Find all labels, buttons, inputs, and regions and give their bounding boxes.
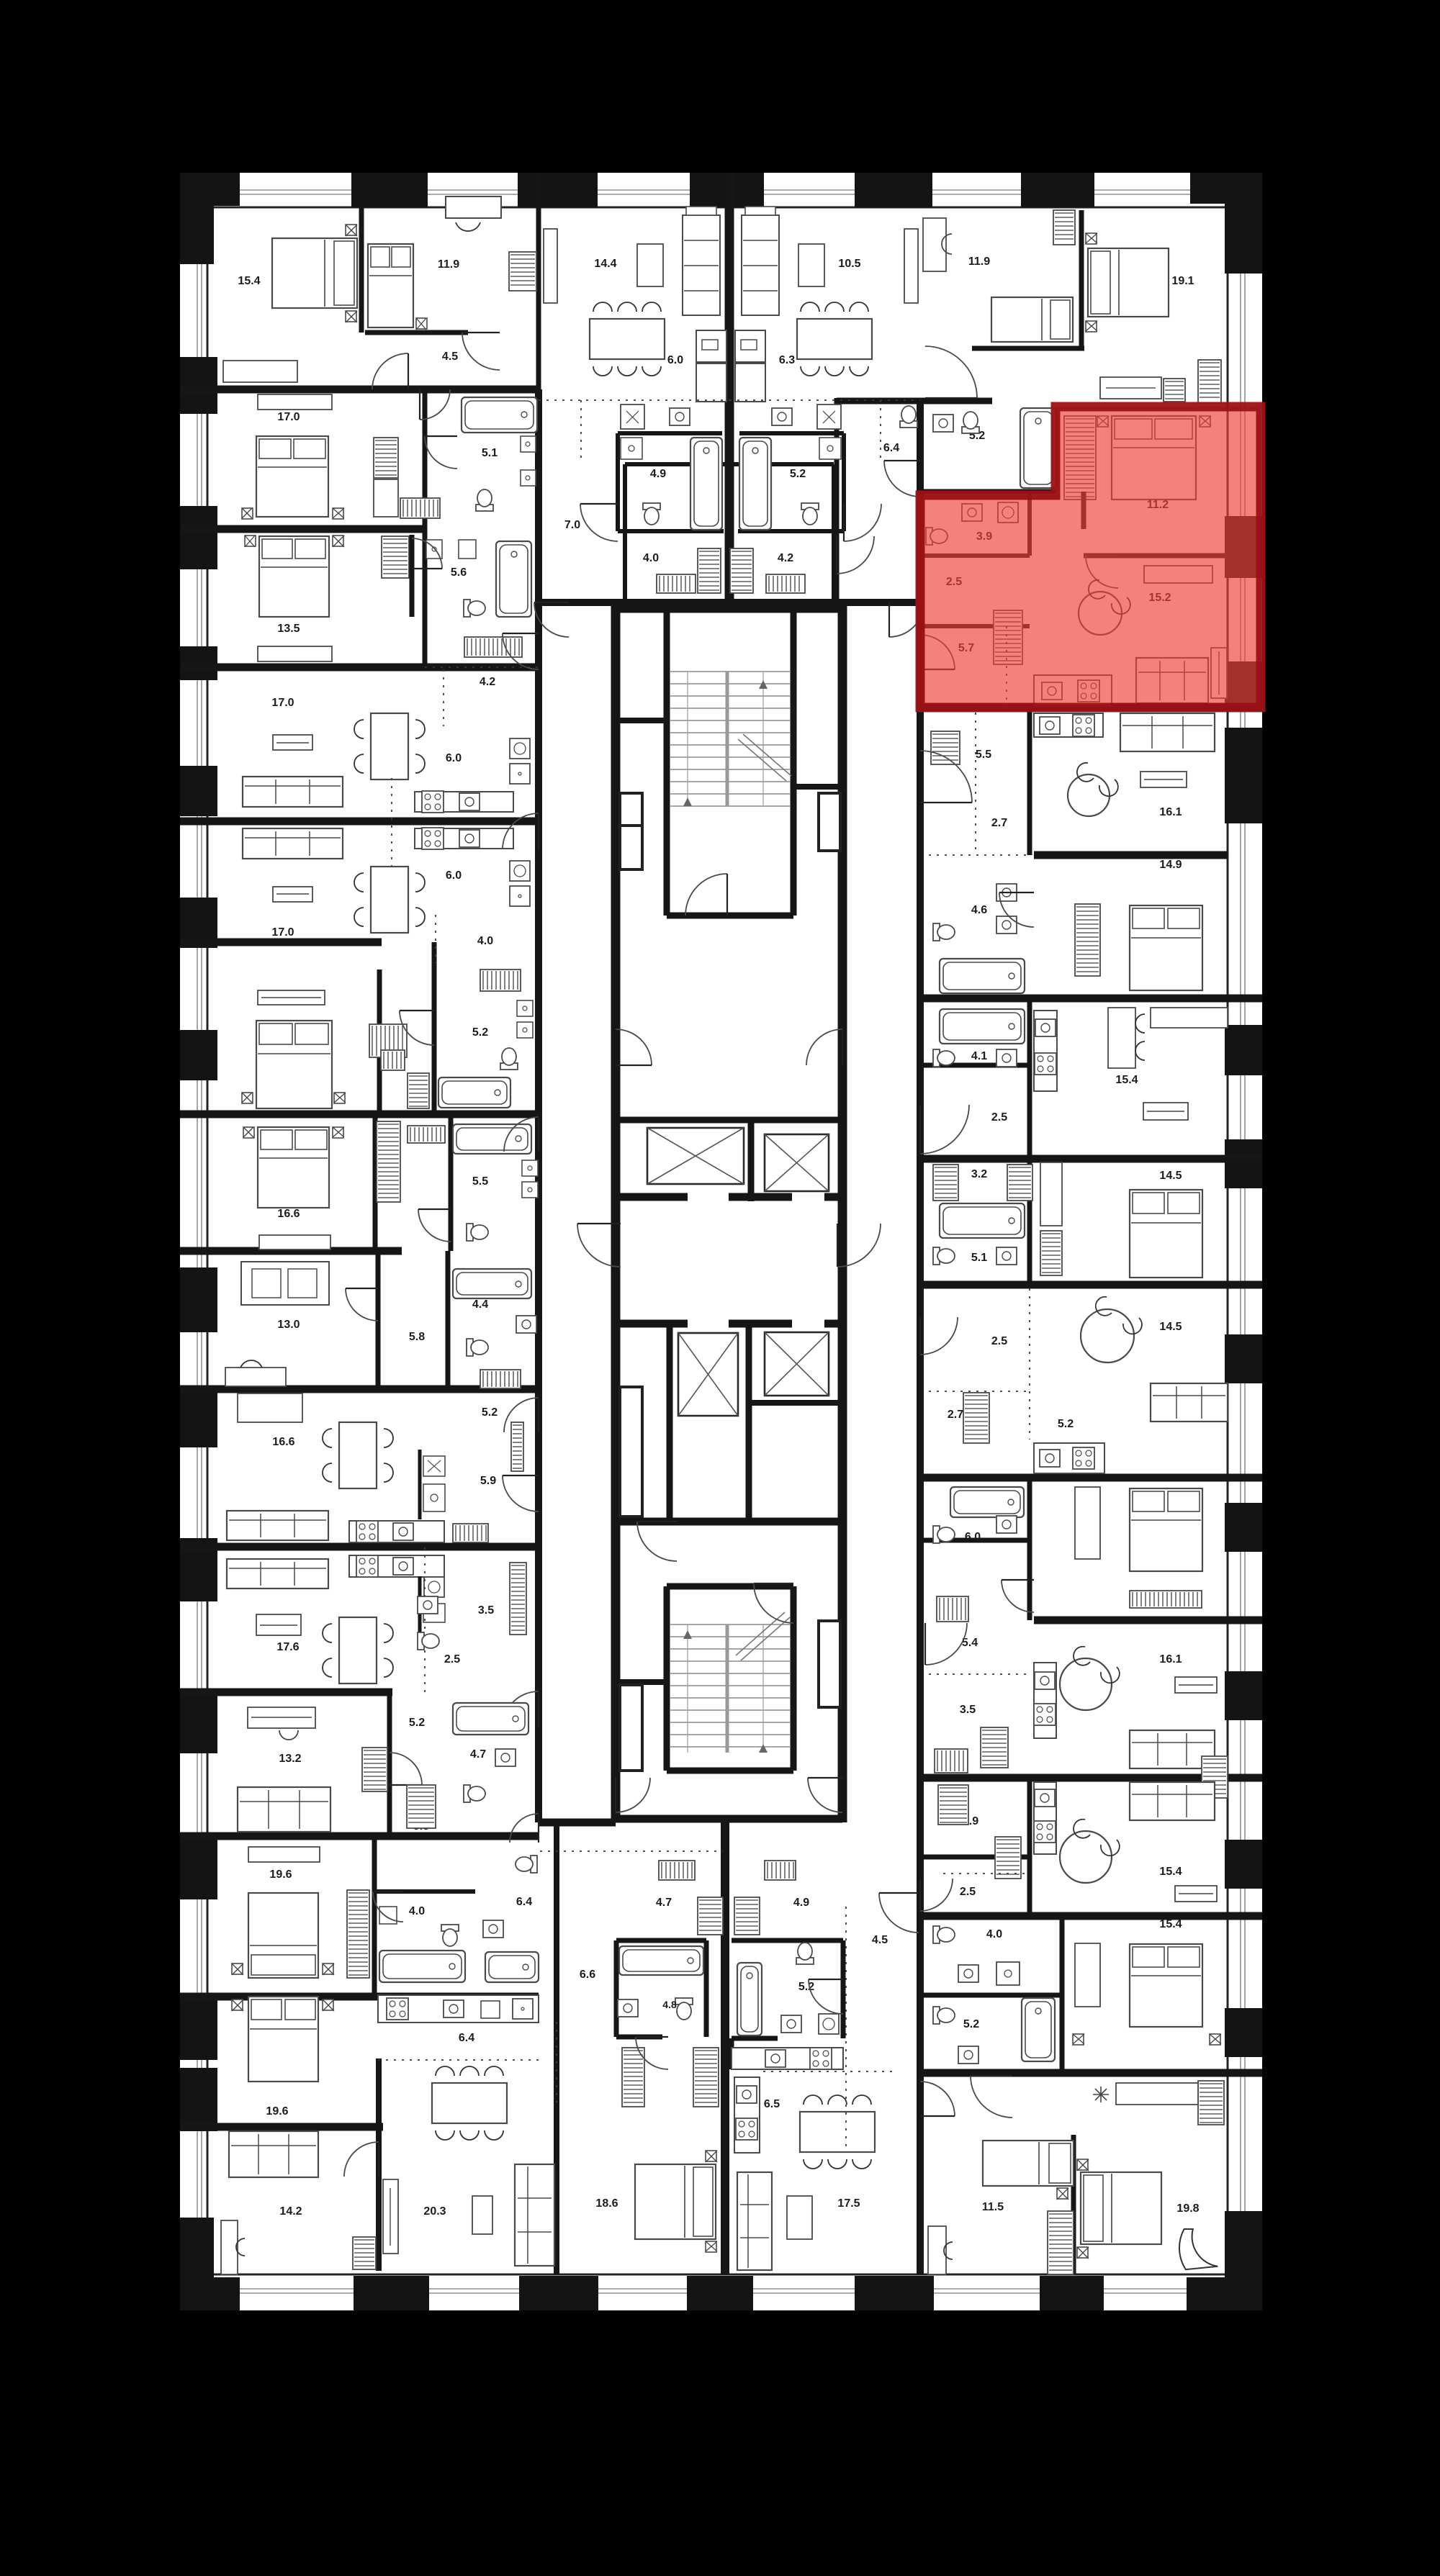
svg-text:4.7: 4.7 — [656, 1897, 672, 1909]
svg-text:6.4: 6.4 — [883, 442, 899, 454]
svg-text:4.9: 4.9 — [650, 468, 666, 480]
svg-text:13.5: 13.5 — [277, 623, 300, 635]
svg-text:4.6: 4.6 — [971, 904, 987, 916]
svg-text:4.5: 4.5 — [442, 351, 458, 363]
svg-text:2.5: 2.5 — [991, 1111, 1007, 1124]
svg-text:5.6: 5.6 — [451, 566, 467, 579]
svg-text:14.4: 14.4 — [594, 258, 616, 270]
svg-text:15.4: 15.4 — [1115, 1074, 1138, 1086]
svg-text:11.9: 11.9 — [968, 256, 990, 268]
svg-text:4.7: 4.7 — [470, 1748, 486, 1761]
svg-text:5.1: 5.1 — [971, 1252, 987, 1264]
svg-text:5.5: 5.5 — [472, 1175, 488, 1188]
svg-text:4.1: 4.1 — [971, 1050, 987, 1062]
svg-text:6.3: 6.3 — [779, 354, 795, 366]
svg-text:4.0: 4.0 — [986, 1928, 1002, 1940]
svg-text:15.4: 15.4 — [1159, 1918, 1182, 1930]
svg-text:4.5: 4.5 — [872, 1934, 888, 1946]
svg-text:6.0: 6.0 — [446, 752, 462, 764]
svg-text:19.6: 19.6 — [266, 2105, 288, 2118]
svg-text:11.9: 11.9 — [438, 258, 459, 271]
svg-text:17.0: 17.0 — [271, 697, 294, 709]
svg-text:16.1: 16.1 — [1159, 806, 1182, 818]
svg-text:15.4: 15.4 — [1159, 1866, 1182, 1878]
svg-text:2.7: 2.7 — [991, 817, 1007, 829]
svg-text:5.2: 5.2 — [963, 2018, 979, 2030]
svg-text:17.5: 17.5 — [837, 2197, 860, 2210]
svg-text:5.2: 5.2 — [409, 1717, 425, 1729]
svg-text:16.6: 16.6 — [272, 1436, 294, 1448]
svg-text:19.8: 19.8 — [1176, 2202, 1199, 2215]
svg-text:2.5: 2.5 — [444, 1653, 460, 1666]
svg-text:3.5: 3.5 — [478, 1604, 494, 1617]
svg-text:4.2: 4.2 — [480, 676, 495, 688]
svg-text:17.0: 17.0 — [271, 926, 294, 939]
svg-text:15.4: 15.4 — [238, 275, 260, 287]
svg-text:6.0: 6.0 — [667, 354, 683, 366]
svg-text:17.0: 17.0 — [277, 411, 300, 423]
svg-text:13.2: 13.2 — [279, 1753, 301, 1765]
svg-text:5.2: 5.2 — [482, 1406, 498, 1419]
svg-text:6.0: 6.0 — [965, 1531, 981, 1543]
svg-text:4.0: 4.0 — [477, 935, 493, 947]
svg-text:6.4: 6.4 — [516, 1896, 532, 1908]
svg-text:4.4: 4.4 — [472, 1298, 488, 1311]
svg-text:20.3: 20.3 — [423, 2205, 446, 2218]
svg-text:16.6: 16.6 — [277, 1208, 300, 1220]
svg-text:13.0: 13.0 — [277, 1319, 300, 1331]
svg-text:6.5: 6.5 — [764, 2098, 780, 2110]
svg-text:5.2: 5.2 — [798, 1981, 814, 1993]
svg-text:18.6: 18.6 — [595, 2197, 618, 2210]
svg-text:4.0: 4.0 — [643, 552, 659, 564]
svg-text:6.0: 6.0 — [446, 869, 462, 882]
svg-text:5.2: 5.2 — [790, 468, 806, 480]
svg-text:14.5: 14.5 — [1159, 1321, 1182, 1333]
svg-text:4.2: 4.2 — [778, 552, 793, 564]
svg-text:10.5: 10.5 — [838, 258, 860, 270]
svg-text:5.8: 5.8 — [409, 1331, 425, 1343]
svg-text:3.2: 3.2 — [971, 1168, 987, 1180]
svg-text:6.4: 6.4 — [459, 2032, 474, 2044]
svg-text:14.5: 14.5 — [1159, 1170, 1182, 1182]
svg-text:5.1: 5.1 — [482, 447, 498, 459]
svg-text:2.5: 2.5 — [960, 1886, 976, 1898]
svg-text:14.9: 14.9 — [1159, 859, 1182, 871]
svg-text:5.5: 5.5 — [976, 749, 991, 761]
svg-text:11.5: 11.5 — [982, 2201, 1004, 2213]
svg-text:4.0: 4.0 — [409, 1905, 425, 1917]
svg-text:7.0: 7.0 — [564, 519, 580, 531]
svg-text:17.6: 17.6 — [276, 1641, 299, 1653]
svg-text:3.5: 3.5 — [960, 1704, 976, 1716]
svg-text:16.1: 16.1 — [1159, 1653, 1182, 1666]
svg-text:6.6: 6.6 — [580, 1969, 595, 1981]
svg-text:4.8: 4.8 — [662, 1999, 677, 2010]
svg-text:5.2: 5.2 — [1058, 1418, 1074, 1430]
svg-text:2.5: 2.5 — [991, 1335, 1007, 1347]
svg-text:19.6: 19.6 — [269, 1868, 292, 1881]
svg-text:2.7: 2.7 — [948, 1409, 963, 1421]
svg-text:14.2: 14.2 — [279, 2205, 302, 2218]
svg-text:5.2: 5.2 — [472, 1026, 488, 1039]
svg-text:19.1: 19.1 — [1171, 275, 1194, 287]
svg-text:5.9: 5.9 — [480, 1475, 496, 1487]
svg-text:4.9: 4.9 — [793, 1897, 809, 1909]
